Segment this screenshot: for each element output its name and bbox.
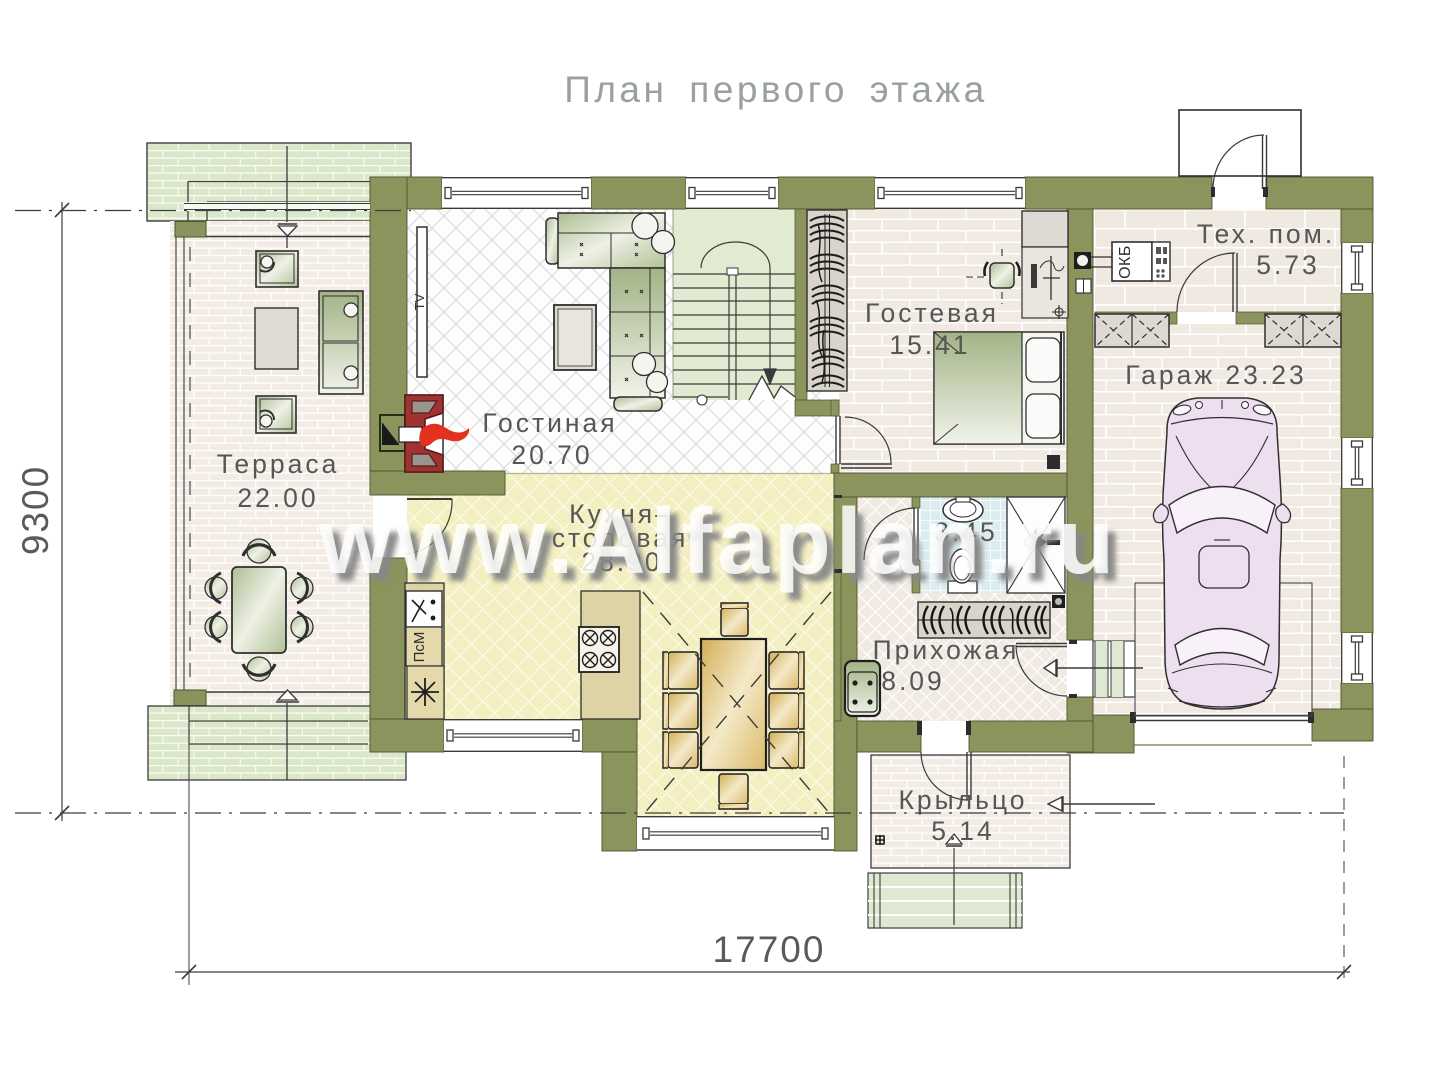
svg-text:8.09: 8.09	[881, 666, 945, 696]
svg-text:5.14: 5.14	[931, 816, 995, 846]
svg-text:9300: 9300	[15, 465, 56, 555]
svg-text:Гостиная: Гостиная	[482, 408, 617, 438]
svg-text:Терраса: Терраса	[217, 449, 340, 479]
svg-text:17700: 17700	[713, 929, 826, 970]
svg-text:ПсМ: ПсМ	[411, 632, 428, 663]
svg-text:5.73: 5.73	[1256, 250, 1320, 280]
svg-text:ОКБ: ОКБ	[1117, 245, 1134, 279]
svg-text:Прихожая: Прихожая	[873, 635, 1020, 665]
svg-text:www.Alfaplan.ru: www.Alfaplan.ru	[318, 489, 1119, 593]
svg-text:Гостевая: Гостевая	[865, 298, 999, 328]
svg-text:План первого этажа: План первого этажа	[564, 69, 988, 110]
svg-text:20.70: 20.70	[511, 440, 592, 470]
svg-text:Крыльцо: Крыльцо	[898, 785, 1027, 815]
svg-text:Гараж 23.23: Гараж 23.23	[1125, 360, 1306, 390]
svg-text:TV: TV	[412, 293, 427, 310]
svg-text:Тех. пом.: Тех. пом.	[1197, 219, 1336, 249]
svg-text:22.00: 22.00	[237, 483, 318, 513]
svg-text:15.41: 15.41	[889, 330, 970, 360]
